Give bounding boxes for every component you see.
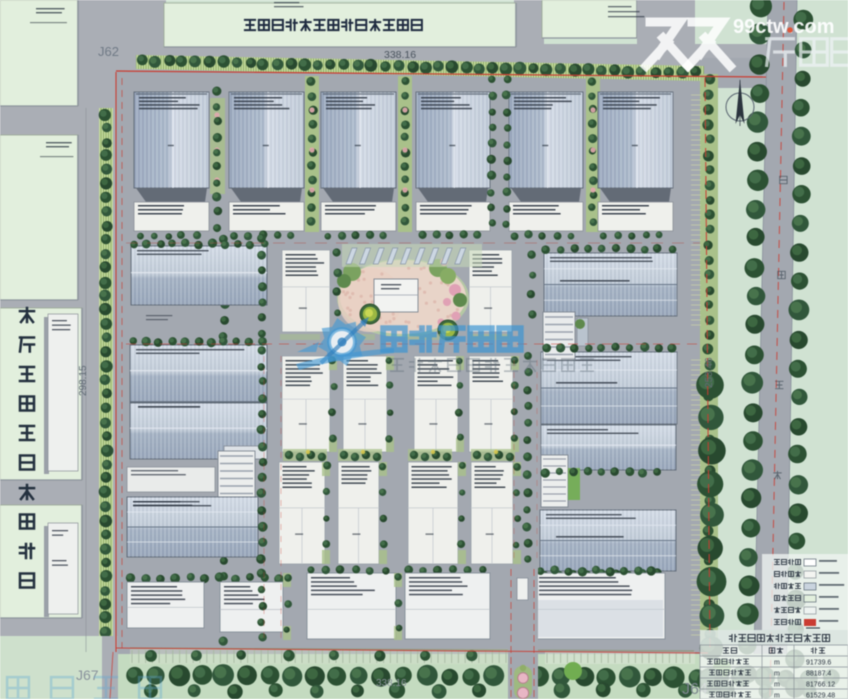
- svg-text:61529.48: 61529.48: [806, 693, 835, 699]
- svg-text:338.16: 338.16: [376, 678, 407, 689]
- svg-text:298.15: 298.15: [78, 365, 89, 396]
- svg-text:253.46: 253.46: [704, 357, 715, 388]
- svg-text:J67: J67: [76, 667, 99, 683]
- svg-text:m: m: [774, 693, 780, 699]
- svg-text:88187.4: 88187.4: [806, 671, 831, 678]
- svg-text:m: m: [774, 671, 780, 678]
- svg-text:81766.12: 81766.12: [806, 682, 835, 689]
- svg-text:338.16: 338.16: [384, 49, 416, 61]
- svg-text:99ctw.com: 99ctw.com: [733, 16, 835, 38]
- svg-text:m: m: [774, 660, 780, 667]
- svg-text:J62: J62: [98, 44, 119, 59]
- svg-text:m: m: [774, 682, 780, 689]
- svg-text:91739.6: 91739.6: [806, 660, 831, 667]
